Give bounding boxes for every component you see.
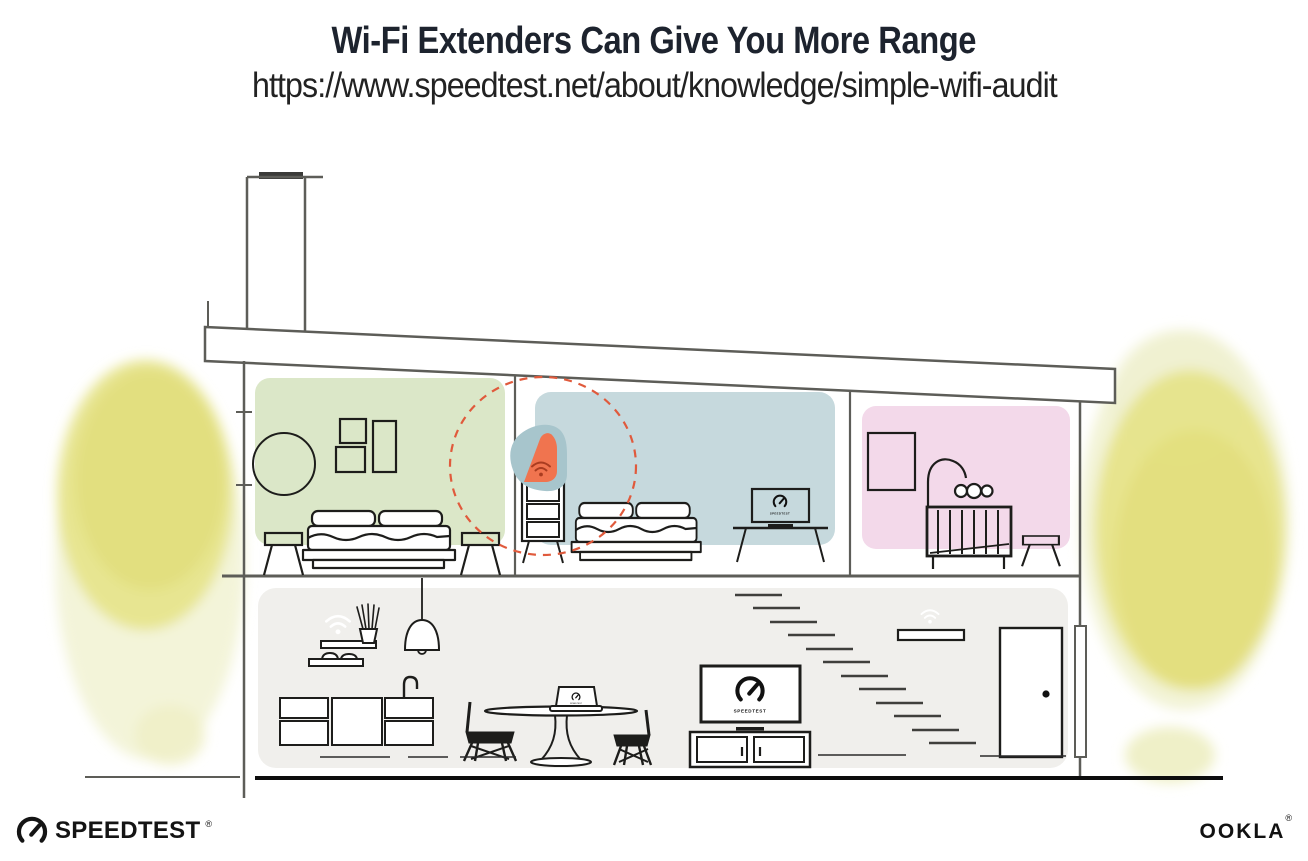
wifi-extender-upstairs	[510, 425, 567, 491]
speedtest-wordmark: SPEEDTEST	[55, 817, 200, 845]
bed-middle	[572, 503, 701, 560]
dresser	[522, 481, 564, 563]
bed-left	[303, 511, 455, 568]
living-room-tv: SPEEDTEST	[701, 666, 800, 731]
door-trim	[1075, 626, 1086, 776]
laptop-label: SPEEDTEST	[570, 703, 583, 705]
ookla-logo: OOKLA ®	[1200, 820, 1292, 844]
speedtest-logo: SPEEDTEST ®	[14, 813, 212, 849]
speedtest-registered-mark: ®	[205, 819, 212, 829]
front-door	[1000, 628, 1062, 757]
bowl	[341, 654, 357, 659]
laptop: SPEEDTEST	[550, 687, 602, 711]
foliage-left-core	[75, 370, 225, 590]
ookla-wordmark: OOKLA	[1200, 820, 1286, 844]
chimney	[247, 172, 323, 334]
media-console	[690, 732, 810, 767]
living-tv-label: SPEEDTEST	[734, 709, 767, 714]
hall-shelf	[898, 630, 964, 640]
bowl	[322, 653, 338, 659]
house-illustration: SPEEDTEST	[0, 0, 1308, 861]
foliage-left	[55, 360, 245, 765]
foliage-right-core	[1115, 430, 1275, 690]
door-knob	[1042, 690, 1049, 697]
wifi-extender-infographic: Wi-Fi Extenders Can Give You More Range …	[0, 0, 1308, 861]
speedtest-gauge-icon	[14, 813, 50, 849]
bedroom-tv-label: SPEEDTEST	[770, 512, 790, 516]
ookla-registered-mark: ®	[1285, 813, 1292, 823]
